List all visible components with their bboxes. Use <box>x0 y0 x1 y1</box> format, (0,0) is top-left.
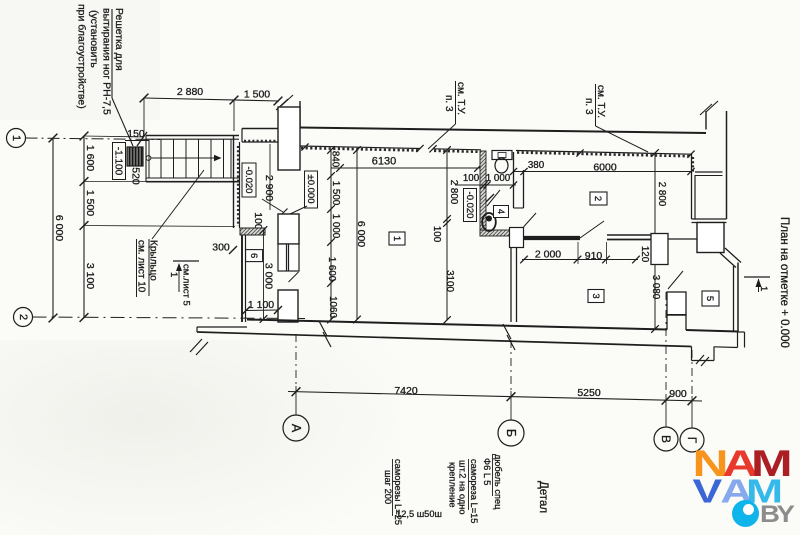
svg-text:шаг 200: шаг 200 <box>383 470 393 504</box>
svg-text:300: 300 <box>212 242 230 254</box>
svg-text:V: V <box>693 474 723 510</box>
svg-text:1 500: 1 500 <box>330 181 341 206</box>
svg-text:-0.020: -0.020 <box>243 167 254 194</box>
svg-text:120: 120 <box>639 246 650 263</box>
svg-text:2 900: 2 900 <box>263 175 275 201</box>
svg-text:6 000: 6 000 <box>355 221 367 247</box>
svg-text:910: 910 <box>585 250 603 262</box>
svg-text:2 880: 2 880 <box>177 86 203 98</box>
svg-text:1060: 1060 <box>327 296 338 318</box>
svg-text:см.лист 5: см.лист 5 <box>181 264 192 306</box>
svg-text:см. Т.У.: см. Т.У. <box>455 82 466 115</box>
svg-text:900: 900 <box>669 388 687 400</box>
svg-text:шт.2 на одно: шт.2 на одно <box>458 460 468 515</box>
svg-text:п. 3: п. 3 <box>583 98 594 115</box>
svg-text:2: 2 <box>592 196 603 201</box>
svg-text:6000: 6000 <box>593 162 617 174</box>
svg-text:см. лист 10: см. лист 10 <box>136 240 147 293</box>
svg-text:1: 1 <box>391 236 402 241</box>
svg-text:3 100: 3 100 <box>84 263 96 289</box>
svg-text:Б: Б <box>504 429 518 437</box>
svg-text:3 000: 3 000 <box>263 263 275 289</box>
svg-text:при благоустройстве): при благоустройстве) <box>76 4 88 109</box>
svg-text:±0.000: ±0.000 <box>305 175 316 204</box>
svg-text:7420: 7420 <box>394 385 418 397</box>
svg-text:(установить: (установить <box>88 10 100 68</box>
svg-text:1 500: 1 500 <box>84 190 96 216</box>
svg-text:дюбель спец: дюбель спец <box>493 454 503 510</box>
svg-text:В: В <box>659 435 673 443</box>
svg-text:1: 1 <box>758 286 769 291</box>
svg-text:3: 3 <box>590 293 601 298</box>
svg-text:100: 100 <box>252 212 264 230</box>
svg-text:-1.100: -1.100 <box>113 147 124 176</box>
svg-text:1: 1 <box>10 135 22 141</box>
svg-text:самореза L=15: самореза L=15 <box>469 459 479 523</box>
svg-text:380: 380 <box>528 160 545 171</box>
svg-text:12,5 ш50ш: 12,5 ш50ш <box>396 509 442 519</box>
svg-text:вытирания ног РН-7,5: вытирания ног РН-7,5 <box>101 8 113 115</box>
svg-text:2 000: 2 000 <box>535 249 561 261</box>
svg-text:6 000: 6 000 <box>53 215 65 241</box>
svg-text:1 100: 1 100 <box>248 299 274 311</box>
svg-text:3 080: 3 080 <box>650 275 661 300</box>
svg-text:2 800: 2 800 <box>656 182 667 207</box>
svg-text:Крыльцо: Крыльцо <box>148 240 159 281</box>
svg-text:Решетка для: Решетка для <box>113 8 125 71</box>
svg-text:А: А <box>289 424 303 433</box>
svg-text:520: 520 <box>130 167 142 185</box>
svg-text:1: 1 <box>168 272 179 277</box>
svg-text:1 600: 1 600 <box>84 145 96 171</box>
svg-text:1 600: 1 600 <box>326 257 337 282</box>
svg-text:п. 3: п. 3 <box>443 95 454 112</box>
svg-text:см. Т.У.: см. Т.У. <box>595 85 606 118</box>
svg-text:6: 6 <box>248 253 259 258</box>
svg-text:План на отметке + 0.000: План на отметке + 0.000 <box>778 217 790 348</box>
svg-text:2: 2 <box>17 314 29 320</box>
svg-text:5250: 5250 <box>577 387 601 399</box>
svg-text:Y: Y <box>776 502 794 528</box>
svg-text:-0.020: -0.020 <box>464 192 475 219</box>
svg-text:100: 100 <box>431 226 442 243</box>
svg-text:6130: 6130 <box>372 156 396 168</box>
svg-text:100: 100 <box>463 173 480 184</box>
svg-text:4: 4 <box>496 209 506 214</box>
svg-text:крепление: крепление <box>448 462 458 508</box>
svg-text:1 000: 1 000 <box>330 214 341 239</box>
svg-text:2 800: 2 800 <box>448 180 459 205</box>
svg-text:3100: 3100 <box>444 270 455 292</box>
svg-text:Детал: Детал <box>537 481 549 513</box>
svg-text:1 500: 1 500 <box>244 89 270 101</box>
svg-text:Ф6 L 5: Ф6 L 5 <box>482 458 492 485</box>
svg-text:840: 840 <box>330 151 341 168</box>
svg-text:5: 5 <box>704 296 715 301</box>
